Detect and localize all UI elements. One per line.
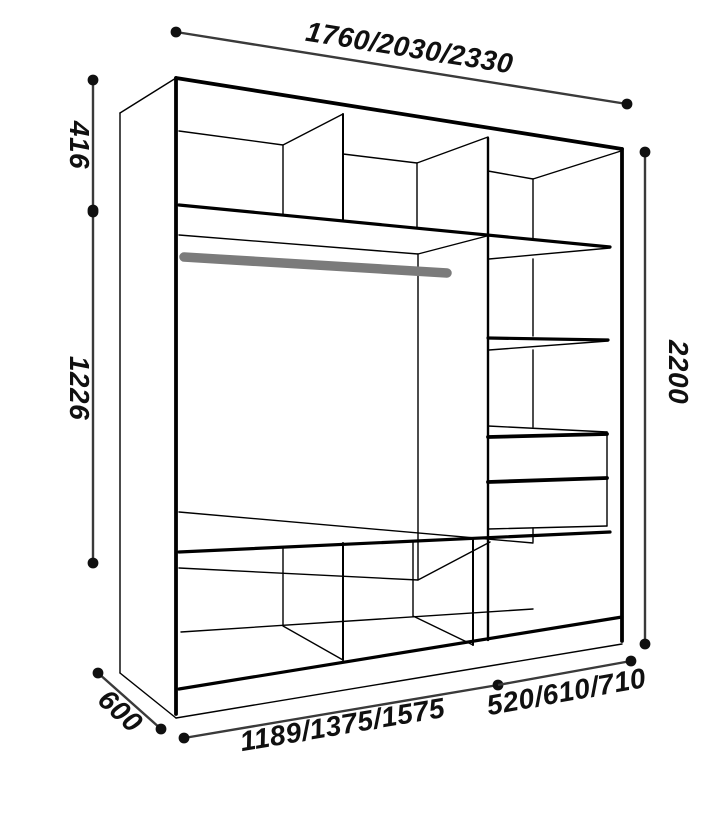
bottom-partition-2-back [413, 541, 473, 645]
dimension-depth: 600 [92, 668, 166, 739]
back-wall-top-mid-segment [343, 154, 417, 163]
top-partition-2-back [417, 137, 488, 228]
top-shelf-underside-left [179, 235, 487, 254]
floor-shelf [179, 512, 610, 580]
dimension-endpoint-dot [622, 99, 633, 110]
dimension-bottom-left-width-label: 1189/1375/1575 [238, 692, 448, 757]
bottom-partitions [283, 538, 473, 660]
dimension-endpoint-dot [640, 147, 651, 158]
dimension-endpoint-dot [88, 75, 99, 86]
dimension-bottom-right-width: 520/610/710 [484, 656, 648, 722]
wardrobe-dimension-diagram: 1760/2030/2330 416 1226 2200 600 1189/13… [0, 0, 707, 813]
dimension-bottom-right-width-label: 520/610/710 [484, 662, 648, 721]
drawer-2-top-edge [488, 478, 607, 482]
top-shelf [179, 205, 610, 259]
diagram-canvas: 1760/2030/2330 416 1226 2200 600 1189/13… [0, 0, 707, 813]
dimension-endpoint-dot [179, 733, 190, 744]
floor-shelf-front-edge [179, 532, 610, 552]
right-wall-top-edge [533, 151, 621, 179]
cabinet-frame [176, 78, 622, 714]
dimension-depth-label: 600 [92, 683, 149, 738]
dimension-endpoint-dot [88, 207, 99, 218]
vertical-divider [418, 138, 488, 640]
dimension-lower-left-height: 1226 [64, 207, 98, 569]
back-wall-top-left-segment [179, 131, 283, 145]
top-partitions [283, 114, 488, 228]
dimension-lower-left-height-label: 1226 [64, 356, 95, 420]
dimension-endpoint-dot [88, 558, 99, 569]
drawer-box-top-edge [488, 426, 607, 432]
dimension-right-height: 2200 [640, 147, 694, 650]
base-back-edge [181, 609, 533, 632]
top-partition-1-back [283, 114, 343, 214]
right-shelf-front-edge [488, 338, 608, 340]
back-wall-top-right-segment [488, 171, 533, 179]
dimension-endpoint-dot [93, 668, 104, 679]
dimension-upper-left-height: 416 [64, 75, 98, 216]
floor-shelf-back-edge [179, 512, 533, 543]
dimension-right-height-label: 2200 [663, 339, 694, 404]
right-column-shelves [488, 338, 608, 350]
hanging-rod [184, 257, 447, 273]
floor-shelf-lower-edge [179, 542, 490, 580]
dimension-endpoint-dot [156, 724, 167, 735]
right-shelf-underside [489, 341, 608, 350]
dimension-top-width: 1760/2030/2330 [171, 16, 633, 110]
left-panel-top-edge [120, 78, 176, 113]
dimension-upper-left-height-label: 416 [64, 120, 95, 169]
top-shelf-underside-right [489, 248, 610, 259]
drawer-1-top-edge [488, 434, 607, 437]
dimension-endpoint-dot [640, 639, 651, 650]
frame-top-edge [176, 78, 622, 149]
drawers [488, 426, 607, 529]
bottom-partition-1-back [283, 547, 343, 660]
drawer-2-bottom-edge [488, 526, 607, 529]
wardrobe-drawing [120, 78, 622, 718]
dimension-endpoint-dot [171, 27, 182, 38]
